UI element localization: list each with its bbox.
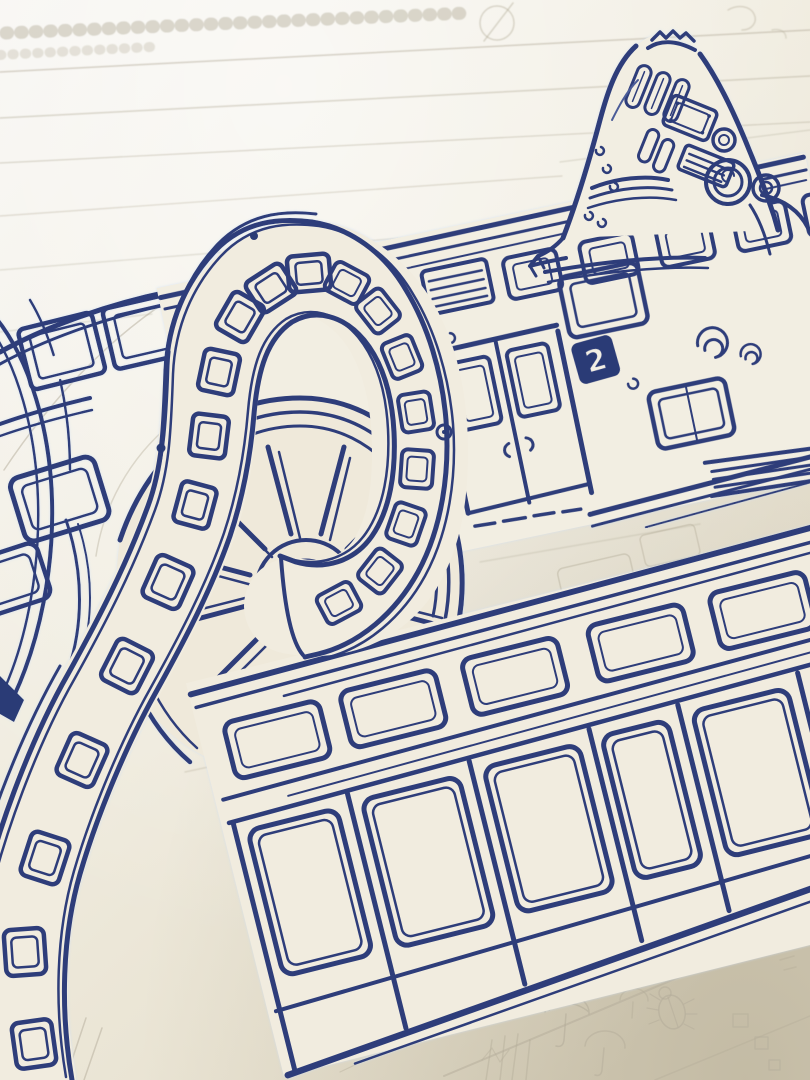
artwork: Close-up photo of an unfinished blue-ink… bbox=[0, 0, 810, 1080]
photo-of-ink-drawing: Close-up photo of an unfinished blue-ink… bbox=[0, 0, 810, 1080]
rivet bbox=[250, 232, 258, 240]
rivet bbox=[157, 444, 166, 453]
